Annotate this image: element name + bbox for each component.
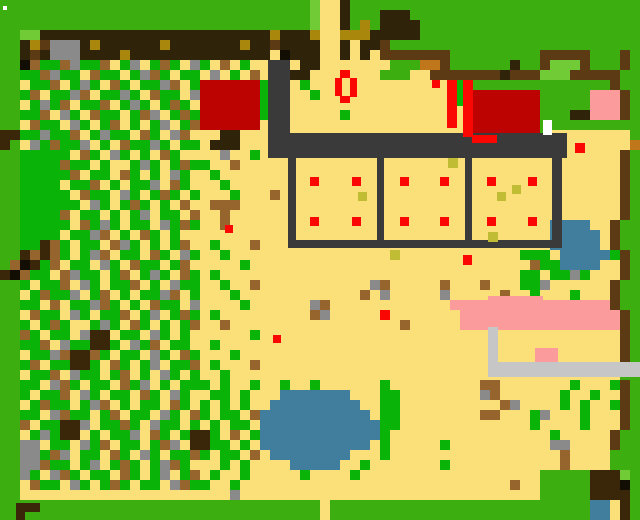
- map-tile: [300, 370, 310, 380]
- map-tile: [330, 170, 340, 180]
- map-tile: [420, 180, 430, 190]
- map-tile: [230, 90, 240, 100]
- map-tile: [560, 20, 570, 30]
- map-tile: [630, 220, 640, 230]
- map-tile: [520, 320, 530, 330]
- map-tile: [510, 80, 520, 90]
- map-tile: [500, 490, 510, 500]
- map-tile: [70, 180, 80, 190]
- map-tile: [40, 400, 50, 410]
- map-tile: [520, 50, 530, 60]
- map-tile: [410, 90, 420, 100]
- map-tile: [110, 510, 120, 520]
- map-tile: [540, 20, 550, 30]
- map-tile: [100, 100, 110, 110]
- map-tile: [20, 480, 30, 490]
- map-tile: [350, 10, 360, 20]
- map-tile: [300, 280, 310, 290]
- map-tile: [180, 380, 190, 390]
- map-tile: [330, 300, 340, 310]
- map-tile: [170, 100, 180, 110]
- map-tile: [70, 200, 80, 210]
- map-tile: [100, 210, 110, 220]
- map-tile: [80, 180, 90, 190]
- map-tile: [150, 230, 160, 240]
- map-tile: [620, 10, 630, 20]
- map-tile: [150, 400, 160, 410]
- map-tile: [430, 250, 440, 260]
- map-tile: [540, 170, 550, 180]
- map-tile: [210, 440, 220, 450]
- map-tile: [590, 140, 600, 150]
- map-tile: [0, 50, 10, 60]
- map-tile: [610, 230, 620, 240]
- map-tile: [180, 210, 190, 220]
- map-tile: [130, 40, 140, 50]
- map-tile: [370, 10, 380, 20]
- map-tile: [150, 410, 160, 420]
- map-tile: [430, 200, 440, 210]
- map-tile: [250, 430, 260, 440]
- map-tile: [530, 510, 540, 520]
- map-tile: [160, 260, 170, 270]
- map-tile: [370, 300, 380, 310]
- map-tile: [270, 160, 280, 170]
- map-tile: [90, 330, 100, 340]
- map-tile: [220, 420, 230, 430]
- map-tile: [280, 440, 290, 450]
- map-tile: [520, 120, 530, 130]
- map-tile: [150, 170, 160, 180]
- map-tile: [330, 250, 340, 260]
- map-tile: [320, 110, 330, 120]
- map-tile: [330, 440, 340, 450]
- map-tile: [390, 20, 400, 30]
- map-tile: [250, 40, 260, 50]
- map-tile: [110, 80, 120, 90]
- map-tile: [40, 440, 50, 450]
- map-tile: [280, 330, 290, 340]
- map-tile: [550, 470, 560, 480]
- map-tile: [40, 120, 50, 130]
- map-tile: [10, 80, 20, 90]
- map-tile: [80, 120, 90, 130]
- map-tile: [130, 310, 140, 320]
- map-tile: [470, 490, 480, 500]
- map-tile: [400, 60, 410, 70]
- map-tile: [500, 0, 510, 10]
- map-tile: [190, 350, 200, 360]
- map-tile: [160, 110, 170, 120]
- map-tile: [580, 380, 590, 390]
- map-tile: [340, 0, 350, 10]
- map-tile: [620, 70, 630, 80]
- map-tile: [200, 450, 210, 460]
- map-tile: [360, 280, 370, 290]
- map-tile: [290, 280, 300, 290]
- map-tile: [20, 360, 30, 370]
- map-tile: [230, 40, 240, 50]
- map-row: [0, 320, 640, 330]
- map-tile: [520, 440, 530, 450]
- map-tile: [460, 30, 470, 40]
- farm-map-canvas[interactable]: [0, 0, 640, 520]
- map-tile: [600, 500, 610, 510]
- map-tile: [140, 500, 150, 510]
- map-tile: [270, 420, 280, 430]
- map-tile: [220, 480, 230, 490]
- map-tile: [50, 220, 60, 230]
- map-tile: [350, 480, 360, 490]
- map-tile: [570, 450, 580, 460]
- map-row: [0, 480, 640, 490]
- map-tile: [30, 460, 40, 470]
- map-tile: [360, 440, 370, 450]
- map-tile: [540, 160, 550, 170]
- map-tile: [570, 440, 580, 450]
- map-tile: [350, 360, 360, 370]
- map-tile: [470, 360, 480, 370]
- map-tile: [570, 470, 580, 480]
- map-tile: [20, 440, 30, 450]
- map-tile: [430, 390, 440, 400]
- map-tile: [80, 490, 90, 500]
- map-tile: [470, 380, 480, 390]
- map-tile: [310, 300, 320, 310]
- map-tile: [90, 170, 100, 180]
- map-tile: [390, 300, 400, 310]
- map-tile: [130, 330, 140, 340]
- map-tile: [390, 0, 400, 10]
- map-tile: [190, 460, 200, 470]
- map-tile: [310, 420, 320, 430]
- map-tile: [200, 20, 210, 30]
- map-tile: [570, 500, 580, 510]
- map-tile: [450, 270, 460, 280]
- map-tile: [80, 360, 90, 370]
- map-tile: [410, 290, 420, 300]
- map-tile: [70, 140, 80, 150]
- map-tile: [240, 260, 250, 270]
- map-tile: [570, 110, 580, 120]
- map-tile: [510, 490, 520, 500]
- map-tile: [210, 230, 220, 240]
- map-tile: [70, 100, 80, 110]
- map-tile: [550, 70, 560, 80]
- map-tile: [250, 300, 260, 310]
- map-tile: [370, 340, 380, 350]
- map-tile: [600, 480, 610, 490]
- map-tile: [380, 260, 390, 270]
- map-tile: [610, 500, 620, 510]
- map-tile: [570, 480, 580, 490]
- map-tile: [250, 370, 260, 380]
- map-tile: [320, 100, 330, 110]
- map-tile: [30, 310, 40, 320]
- red-crop-dot: [352, 177, 361, 186]
- map-tile: [70, 470, 80, 480]
- map-tile: [480, 190, 490, 200]
- map-tile: [100, 90, 110, 100]
- map-tile: [110, 260, 120, 270]
- map-tile: [210, 210, 220, 220]
- map-tile: [400, 510, 410, 520]
- map-tile: [420, 490, 430, 500]
- map-tile: [520, 160, 530, 170]
- map-tile: [420, 260, 430, 270]
- map-tile: [550, 0, 560, 10]
- map-tile: [60, 30, 70, 40]
- map-tile: [370, 500, 380, 510]
- map-tile: [210, 320, 220, 330]
- map-tile: [440, 0, 450, 10]
- map-tile: [0, 150, 10, 160]
- map-tile: [250, 170, 260, 180]
- map-tile: [160, 300, 170, 310]
- map-tile: [580, 460, 590, 470]
- map-tile: [420, 110, 430, 120]
- map-tile: [140, 230, 150, 240]
- map-tile: [80, 100, 90, 110]
- map-tile: [430, 0, 440, 10]
- map-tile: [300, 470, 310, 480]
- map-tile: [100, 10, 110, 20]
- map-tile: [210, 400, 220, 410]
- map-tile: [130, 140, 140, 150]
- map-tile: [520, 500, 530, 510]
- map-tile: [200, 330, 210, 340]
- map-tile: [600, 210, 610, 220]
- map-tile: [150, 300, 160, 310]
- map-tile: [350, 450, 360, 460]
- map-tile: [510, 40, 520, 50]
- map-tile: [50, 360, 60, 370]
- map-tile: [620, 390, 630, 400]
- map-tile: [610, 390, 620, 400]
- map-tile: [320, 60, 330, 70]
- map-tile: [150, 250, 160, 260]
- map-tile: [260, 200, 270, 210]
- map-tile: [440, 480, 450, 490]
- map-tile: [290, 250, 300, 260]
- map-tile: [290, 430, 300, 440]
- map-tile: [440, 320, 450, 330]
- map-tile: [400, 480, 410, 490]
- map-tile: [350, 470, 360, 480]
- map-tile: [210, 460, 220, 470]
- map-tile: [120, 110, 130, 120]
- map-tile: [390, 350, 400, 360]
- map-tile: [520, 30, 530, 40]
- map-tile: [60, 160, 70, 170]
- map-tile: [330, 310, 340, 320]
- map-tile: [480, 90, 490, 100]
- map-tile: [370, 480, 380, 490]
- map-tile: [130, 320, 140, 330]
- map-tile: [80, 110, 90, 120]
- map-tile: [80, 170, 90, 180]
- map-row: [0, 260, 640, 270]
- map-tile: [270, 300, 280, 310]
- map-tile: [50, 380, 60, 390]
- map-tile: [220, 460, 230, 470]
- map-tile: [10, 400, 20, 410]
- map-tile: [40, 240, 50, 250]
- map-tile: [590, 120, 600, 130]
- map-tile: [390, 40, 400, 50]
- map-tile: [230, 20, 240, 30]
- map-tile: [320, 460, 330, 470]
- map-tile: [300, 170, 310, 180]
- map-tile: [180, 200, 190, 210]
- map-tile: [150, 160, 160, 170]
- map-tile: [430, 260, 440, 270]
- map-tile: [190, 270, 200, 280]
- map-tile: [50, 40, 60, 50]
- map-tile: [90, 350, 100, 360]
- map-tile: [430, 360, 440, 370]
- map-tile: [120, 330, 130, 340]
- map-tile: [110, 430, 120, 440]
- map-tile: [150, 80, 160, 90]
- map-tile: [390, 330, 400, 340]
- map-tile: [410, 250, 420, 260]
- barn-door-red: [472, 135, 497, 143]
- map-tile: [510, 390, 520, 400]
- map-tile: [140, 440, 150, 450]
- map-tile: [60, 0, 70, 10]
- map-tile: [40, 70, 50, 80]
- map-tile: [130, 190, 140, 200]
- map-row: [0, 450, 640, 460]
- map-tile: [620, 460, 630, 470]
- map-tile: [80, 390, 90, 400]
- map-tile: [50, 120, 60, 130]
- map-tile: [590, 160, 600, 170]
- map-tile: [530, 440, 540, 450]
- map-tile: [370, 310, 380, 320]
- map-tile: [0, 300, 10, 310]
- map-tile: [510, 510, 520, 520]
- map-tile: [50, 160, 60, 170]
- map-tile: [470, 470, 480, 480]
- map-tile: [550, 390, 560, 400]
- map-tile: [220, 450, 230, 460]
- map-tile: [210, 510, 220, 520]
- map-tile: [90, 490, 100, 500]
- map-tile: [350, 160, 360, 170]
- map-tile: [280, 370, 290, 380]
- map-tile: [280, 340, 290, 350]
- map-tile: [50, 290, 60, 300]
- map-tile: [90, 40, 100, 50]
- map-tile: [430, 60, 440, 70]
- map-tile: [390, 210, 400, 220]
- map-tile: [80, 500, 90, 510]
- sprout-tile: [512, 185, 521, 194]
- map-tile: [420, 330, 430, 340]
- red-marker-1: [432, 80, 440, 88]
- map-tile: [400, 100, 410, 110]
- map-tile: [340, 120, 350, 130]
- map-tile: [240, 130, 250, 140]
- map-tile: [170, 320, 180, 330]
- map-tile: [70, 190, 80, 200]
- map-tile: [80, 450, 90, 460]
- map-tile: [10, 190, 20, 200]
- map-tile: [180, 250, 190, 260]
- map-tile: [600, 280, 610, 290]
- map-tile: [340, 340, 350, 350]
- map-tile: [140, 100, 150, 110]
- map-tile: [470, 270, 480, 280]
- map-tile: [630, 250, 640, 260]
- map-tile: [390, 180, 400, 190]
- map-tile: [570, 210, 580, 220]
- map-tile: [350, 280, 360, 290]
- map-tile: [630, 390, 640, 400]
- map-tile: [620, 100, 630, 110]
- map-tile: [350, 350, 360, 360]
- map-tile: [330, 400, 340, 410]
- map-tile: [30, 320, 40, 330]
- map-tile: [230, 0, 240, 10]
- map-tile: [570, 20, 580, 30]
- map-tile: [410, 470, 420, 480]
- map-tile: [240, 250, 250, 260]
- map-tile: [110, 350, 120, 360]
- map-tile: [240, 60, 250, 70]
- map-tile: [30, 150, 40, 160]
- map-tile: [490, 420, 500, 430]
- map-tile: [150, 20, 160, 30]
- map-tile: [100, 410, 110, 420]
- map-tile: [180, 460, 190, 470]
- map-tile: [590, 410, 600, 420]
- map-tile: [170, 260, 180, 270]
- map-tile: [240, 240, 250, 250]
- map-tile: [20, 0, 30, 10]
- map-tile: [340, 440, 350, 450]
- map-tile: [540, 10, 550, 20]
- map-tile: [0, 400, 10, 410]
- map-tile: [310, 200, 320, 210]
- map-tile: [90, 450, 100, 460]
- map-tile: [70, 70, 80, 80]
- map-tile: [240, 80, 250, 90]
- map-tile: [390, 100, 400, 110]
- map-tile: [440, 200, 450, 210]
- map-tile: [580, 430, 590, 440]
- map-tile: [570, 190, 580, 200]
- map-tile: [360, 10, 370, 20]
- map-tile: [570, 340, 580, 350]
- map-tile: [0, 140, 10, 150]
- map-tile: [450, 210, 460, 220]
- red-crop-dot: [440, 217, 449, 226]
- map-tile: [200, 180, 210, 190]
- map-tile: [530, 450, 540, 460]
- map-tile: [320, 500, 330, 510]
- map-tile: [160, 380, 170, 390]
- map-tile: [260, 20, 270, 30]
- map-tile: [380, 500, 390, 510]
- map-tile: [270, 280, 280, 290]
- map-tile: [290, 40, 300, 50]
- map-tile: [310, 190, 320, 200]
- pen-divider-3: [465, 158, 472, 248]
- map-tile: [200, 290, 210, 300]
